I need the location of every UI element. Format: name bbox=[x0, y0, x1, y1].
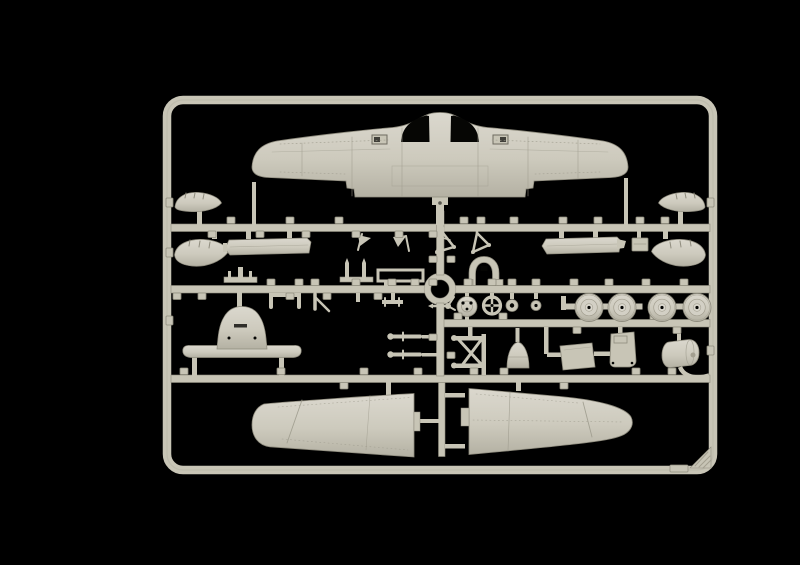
gate-pad bbox=[302, 231, 310, 238]
sprue-svg bbox=[40, 16, 800, 549]
gate-stubs-shape bbox=[594, 352, 610, 357]
small-disc-part-shape bbox=[510, 303, 514, 307]
runner-horizontal-middle-shape bbox=[171, 286, 426, 294]
runner-horizontal-middle-shape bbox=[455, 286, 711, 294]
wheel-1-axle-hole bbox=[587, 306, 590, 309]
gear-truss-part-shape bbox=[451, 363, 457, 369]
gate-pad bbox=[429, 334, 437, 341]
corner-mold-mark-shape bbox=[670, 465, 688, 472]
gate-pad bbox=[277, 368, 285, 375]
gate-pad bbox=[680, 279, 688, 286]
gate-stubs-shape bbox=[637, 229, 641, 239]
twin-post-part-shape bbox=[345, 263, 349, 278]
gate-pad bbox=[429, 279, 437, 286]
gate-pad bbox=[447, 256, 455, 263]
hub-disc-part-shape bbox=[469, 301, 472, 304]
twin-post-part-shape bbox=[362, 263, 366, 278]
lower-wing-left-shape bbox=[414, 412, 420, 431]
gate-stubs-shape bbox=[544, 327, 549, 354]
open-frame-part-shape bbox=[384, 281, 388, 286]
gate-pad bbox=[267, 279, 275, 286]
gate-pad bbox=[429, 256, 437, 263]
tiny-disc-part bbox=[531, 301, 541, 311]
gate-pad bbox=[429, 231, 437, 238]
gate-pad bbox=[510, 217, 518, 224]
cross-hub-part-shape bbox=[491, 304, 494, 307]
gate-stubs-shape bbox=[287, 230, 292, 239]
cowling-bell-part-shape bbox=[228, 337, 231, 340]
gate-pad bbox=[605, 279, 613, 286]
gun-barrels-part-shape bbox=[422, 353, 437, 357]
gate-pad bbox=[323, 293, 331, 300]
tiny-disc-part-shape bbox=[534, 304, 537, 307]
upper-wing-part-shape bbox=[438, 201, 442, 205]
gate-stubs-shape bbox=[678, 210, 683, 225]
lower-wing-right-shape bbox=[461, 408, 469, 426]
gate-pad bbox=[166, 198, 173, 207]
runner-vertical-center-shape bbox=[437, 303, 445, 376]
gate-pad bbox=[470, 368, 478, 375]
gate-stubs-shape bbox=[246, 230, 251, 239]
wishbone-part-b-shape bbox=[487, 243, 491, 247]
flat-slab-left-shape bbox=[223, 243, 227, 252]
crossbar-part-shape bbox=[391, 293, 395, 301]
small-bracket-part-shape bbox=[632, 238, 648, 251]
gate-pad bbox=[488, 279, 496, 286]
gate-stubs-shape bbox=[510, 293, 514, 299]
t-post-part bbox=[356, 293, 360, 302]
t-post-part-shape bbox=[356, 293, 360, 302]
runner-horizontal-lower-right bbox=[441, 320, 710, 328]
upper-wing-part-shape bbox=[500, 137, 506, 142]
gate-pad bbox=[388, 279, 396, 286]
gate-stubs-shape bbox=[624, 178, 628, 225]
gate-pad bbox=[311, 279, 319, 286]
cowl-cylinder-part-shape bbox=[691, 353, 696, 358]
gate-pad bbox=[707, 198, 714, 207]
gate-pad bbox=[454, 313, 462, 320]
gear-truss-part-shape bbox=[482, 334, 487, 375]
hub-disc-part-shape bbox=[466, 308, 469, 311]
gate-pad bbox=[594, 217, 602, 224]
gate-pad bbox=[286, 293, 294, 300]
gate-pad bbox=[414, 368, 422, 375]
cross-hub-part bbox=[484, 297, 501, 314]
wishbone-part-a-shape bbox=[435, 250, 439, 254]
gate-stubs-shape bbox=[559, 229, 564, 238]
gate-stubs-shape bbox=[593, 229, 598, 238]
gate-pad bbox=[166, 316, 173, 325]
small-bracket-part bbox=[632, 238, 648, 251]
gear-truss-part-shape bbox=[451, 335, 457, 341]
gate-pad bbox=[499, 313, 507, 320]
small-disc-part bbox=[506, 300, 518, 312]
gate-stubs-shape bbox=[468, 327, 473, 336]
gate-pad bbox=[636, 217, 644, 224]
gun-barrels-part-shape bbox=[389, 335, 422, 339]
gate-stubs-shape bbox=[237, 291, 242, 307]
arch-part-shape bbox=[481, 266, 488, 271]
cowling-bell-part-shape bbox=[234, 324, 247, 328]
gate-pad bbox=[642, 279, 650, 286]
antenna-stand-part-shape bbox=[238, 267, 243, 278]
upper-wing-part-shape bbox=[374, 137, 380, 142]
wheel-3-axle-hole bbox=[660, 306, 663, 309]
gate-stubs-shape bbox=[563, 304, 576, 310]
gate-pad bbox=[500, 368, 508, 375]
gate-stubs-shape bbox=[197, 210, 202, 225]
gate-stubs-shape bbox=[252, 182, 256, 225]
model-kit-sprue-photo bbox=[40, 16, 800, 549]
gate-stubs-shape bbox=[386, 382, 391, 395]
gate-pad bbox=[573, 327, 581, 334]
gate-pad bbox=[198, 293, 206, 300]
gate-stubs-shape bbox=[516, 328, 520, 342]
antenna-stand-part-shape bbox=[249, 271, 252, 278]
hatch-plate-part-shape bbox=[631, 362, 634, 365]
wheel-4-axle-hole bbox=[695, 306, 698, 309]
runner-horizontal-lower-right-shape bbox=[441, 320, 710, 328]
wishbone-part-a-shape bbox=[452, 245, 456, 249]
flat-slab-right-shape bbox=[542, 237, 621, 254]
lower-wing-left bbox=[252, 394, 420, 458]
gate-stubs-shape bbox=[534, 293, 538, 299]
gate-stubs-shape bbox=[547, 353, 561, 358]
gate-pad bbox=[335, 217, 343, 224]
gate-pad bbox=[673, 327, 681, 334]
gate-pad bbox=[508, 279, 516, 286]
gun-barrels-part-shape bbox=[389, 353, 422, 357]
gate-pad bbox=[707, 346, 714, 355]
gate-pad bbox=[286, 217, 294, 224]
gate-stubs-shape bbox=[618, 327, 623, 333]
gate-pad bbox=[560, 383, 568, 390]
gate-stubs-shape bbox=[676, 304, 684, 310]
gate-pad bbox=[166, 248, 173, 257]
gate-pad bbox=[668, 368, 676, 375]
hatch-plate-part bbox=[610, 332, 636, 367]
equipment-box-part bbox=[560, 343, 595, 370]
gate-stubs-shape bbox=[445, 393, 465, 398]
gate-pad bbox=[352, 279, 360, 286]
runner-vertical-center-shape bbox=[439, 383, 446, 457]
gate-stubs-shape bbox=[663, 228, 668, 239]
gate-pad bbox=[460, 217, 468, 224]
gate-pad bbox=[340, 383, 348, 390]
gun-barrels-part-shape bbox=[387, 351, 393, 357]
gate-stubs-shape bbox=[516, 382, 521, 391]
gate-pad bbox=[464, 279, 472, 286]
gate-pad bbox=[173, 293, 181, 300]
gate-pad bbox=[477, 217, 485, 224]
gate-pad bbox=[570, 279, 578, 286]
gate-pad bbox=[632, 368, 640, 375]
gate-pad bbox=[447, 352, 455, 359]
flat-slab-left bbox=[223, 238, 311, 255]
wishbone-part-b-shape bbox=[471, 250, 475, 254]
gate-pad bbox=[374, 293, 382, 300]
hatch-plate-part-shape bbox=[612, 362, 615, 365]
wheel-2-axle-hole bbox=[620, 306, 623, 309]
hub-disc-part-shape bbox=[461, 301, 464, 304]
gate-stubs-shape bbox=[445, 444, 465, 449]
cowling-bell-part-shape bbox=[254, 337, 257, 340]
gate-stubs-shape bbox=[419, 419, 439, 423]
gate-pad bbox=[180, 368, 188, 375]
flat-slab-right bbox=[542, 237, 626, 254]
gate-pad bbox=[532, 279, 540, 286]
gate-stubs-shape bbox=[436, 204, 444, 225]
gate-stubs-shape bbox=[636, 304, 643, 310]
gate-pad bbox=[256, 231, 264, 238]
gate-pad bbox=[295, 279, 303, 286]
gate-pad bbox=[661, 217, 669, 224]
gun-barrels-part-shape bbox=[387, 333, 393, 339]
gate-pad bbox=[360, 368, 368, 375]
gate-pad bbox=[208, 231, 216, 238]
gate-pad bbox=[352, 231, 360, 238]
gate-pad bbox=[227, 217, 235, 224]
gate-pad bbox=[559, 217, 567, 224]
antenna-stand-part-shape bbox=[228, 271, 231, 278]
gate-pad bbox=[411, 279, 419, 286]
gate-pad bbox=[395, 231, 403, 238]
